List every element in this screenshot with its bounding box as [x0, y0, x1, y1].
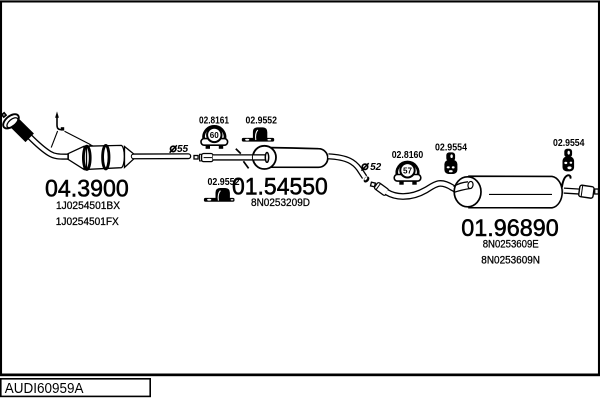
svg-text:8N0253609N: 8N0253609N: [481, 254, 540, 266]
svg-text:02.9554: 02.9554: [435, 142, 467, 154]
svg-text:1J0254501FX: 1J0254501FX: [56, 216, 120, 228]
svg-text:02.9554: 02.9554: [553, 137, 585, 149]
svg-text:8N0253209D: 8N0253209D: [251, 197, 310, 209]
svg-text:02.8161: 02.8161: [199, 115, 229, 127]
svg-text:52: 52: [370, 162, 382, 173]
svg-text:02.9552: 02.9552: [246, 115, 278, 127]
svg-text:AUDI60959A: AUDI60959A: [5, 381, 84, 397]
svg-text:57: 57: [403, 165, 412, 175]
svg-text:02.8160: 02.8160: [392, 149, 424, 161]
svg-text:55: 55: [177, 144, 189, 155]
svg-text:1J0254501BX: 1J0254501BX: [56, 200, 121, 212]
svg-text:04.3900: 04.3900: [45, 176, 129, 203]
svg-text:60: 60: [210, 130, 219, 140]
svg-text:8N0253609E: 8N0253609E: [483, 238, 539, 250]
